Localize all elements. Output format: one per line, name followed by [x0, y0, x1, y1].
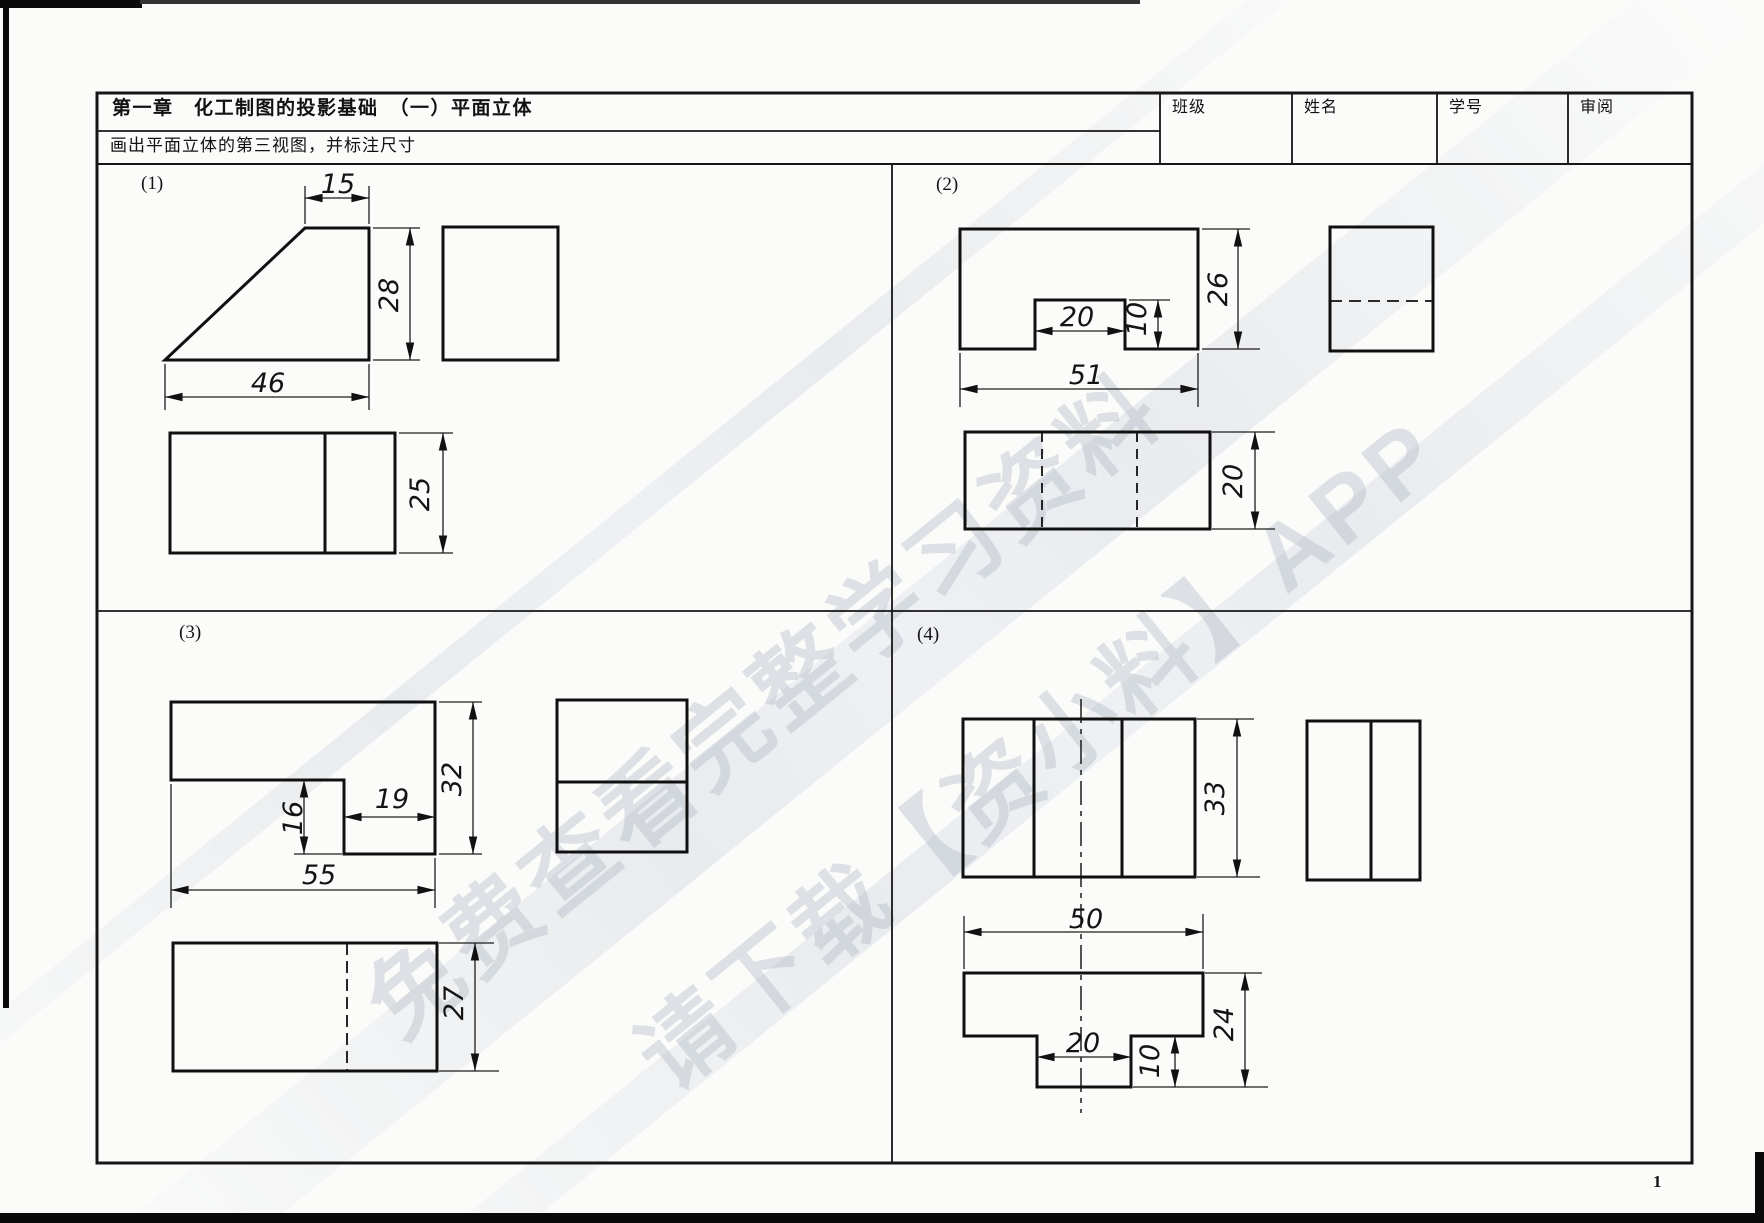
problem-2-label: (2) — [936, 174, 958, 195]
dim-depth: 25 — [405, 477, 436, 511]
problem-1-side-view — [443, 227, 558, 360]
dim-height: 33 — [1200, 781, 1231, 815]
problem-3-top-view — [173, 943, 437, 1071]
problem-4-side-view — [1307, 721, 1420, 880]
problem-1-front-view — [165, 228, 369, 360]
field-label-student-id: 学号 — [1449, 100, 1483, 116]
dim-top-width: 15 — [321, 169, 355, 200]
problem-2-top-view — [965, 432, 1210, 529]
dim-tab-width: 20 — [1066, 1028, 1100, 1059]
dim-width: 51 — [1069, 360, 1103, 391]
dim-width: 50 — [1069, 904, 1103, 935]
problem-3-label: (3) — [179, 622, 201, 643]
field-label-review: 审阅 — [1580, 100, 1614, 116]
problem-1-top-view — [170, 433, 395, 553]
dim-height: 32 — [437, 762, 468, 796]
scan-edge-artifact — [3, 0, 9, 1008]
problem-1: (1) 15 28 46 — [141, 169, 558, 553]
dim-width: 55 — [302, 860, 336, 891]
scan-edge-artifact — [140, 0, 1140, 4]
worksheet-drawing: (1) 15 28 46 — [0, 0, 1764, 1223]
problem-3-side-view — [557, 700, 687, 852]
field-label-class: 班级 — [1172, 100, 1206, 116]
sheet-title: 第一章 化工制图的投影基础 （一）平面立体 — [112, 99, 533, 118]
problem-2: (2) — [936, 174, 1433, 529]
problem-3: (3) 16 — [171, 622, 687, 1071]
dim-depth: 24 — [1209, 1007, 1240, 1041]
problem-4-front-view — [963, 719, 1195, 877]
dim-step-width: 19 — [375, 784, 409, 815]
sheet-instruction: 画出平面立体的第三视图，并标注尺寸 — [110, 137, 416, 154]
page-number: 1 — [1653, 1172, 1662, 1192]
problem-4-label: (4) — [917, 624, 939, 645]
field-label-name: 姓名 — [1304, 100, 1338, 116]
sheet-grid — [97, 93, 1692, 1163]
problem-4: (4) 3 — [917, 624, 1420, 1113]
dim-step-height: 16 — [278, 801, 309, 835]
dim-height: 26 — [1203, 272, 1234, 306]
dim-slot-height: 10 — [1122, 302, 1153, 336]
dim-depth: 20 — [1218, 464, 1249, 498]
scan-edge-artifact — [0, 1213, 1764, 1223]
problem-2-side-view — [1330, 227, 1433, 351]
scan-edge-artifact — [1755, 1152, 1764, 1223]
dim-width: 46 — [251, 368, 285, 399]
worksheet-page: 免费查看完整学习资料 请下载【资小料】APP (1) — [0, 0, 1764, 1223]
scan-edge-artifact — [0, 0, 142, 8]
dim-depth: 27 — [439, 986, 470, 1020]
dim-tab-height: 10 — [1135, 1044, 1166, 1078]
dim-height: 28 — [374, 278, 405, 312]
problem-1-label: (1) — [141, 173, 163, 194]
dim-slot-width: 20 — [1060, 302, 1094, 333]
